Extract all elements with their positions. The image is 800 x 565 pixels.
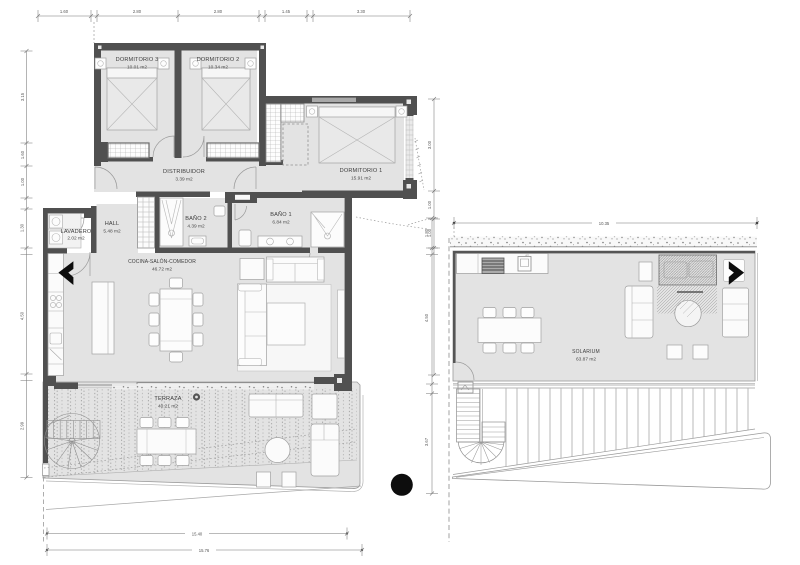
- svg-text:1.30: 1.30: [20, 223, 25, 232]
- svg-text:BAÑO 1: BAÑO 1: [270, 211, 291, 218]
- svg-text:15.91 m2: 15.91 m2: [351, 176, 371, 182]
- svg-text:3.39 m2: 3.39 m2: [175, 177, 193, 183]
- svg-text:10.35: 10.35: [599, 221, 610, 226]
- svg-text:1.00: 1.00: [20, 177, 25, 186]
- svg-text:SOLARIUM: SOLARIUM: [572, 349, 600, 355]
- svg-text:TERRAZA: TERRAZA: [154, 396, 181, 402]
- svg-text:DORMITORIO 1: DORMITORIO 1: [340, 168, 383, 174]
- svg-text:DISTRIBUIDOR: DISTRIBUIDOR: [163, 169, 205, 175]
- svg-text:1.60: 1.60: [60, 9, 69, 14]
- svg-text:2.99: 2.99: [20, 421, 25, 430]
- svg-text:HALL: HALL: [105, 221, 120, 227]
- svg-text:3.00: 3.00: [427, 140, 432, 149]
- svg-text:4.50: 4.50: [424, 313, 429, 322]
- svg-text:1.00: 1.00: [427, 200, 432, 209]
- svg-text:15.76: 15.76: [199, 548, 210, 553]
- svg-text:2.02 m2: 2.02 m2: [67, 236, 85, 242]
- svg-text:5.48 m2: 5.48 m2: [103, 229, 121, 235]
- svg-text:40.21 m2: 40.21 m2: [158, 404, 178, 410]
- svg-text:DORMITORIO 3: DORMITORIO 3: [116, 57, 159, 63]
- svg-text:3.15: 3.15: [20, 92, 25, 101]
- svg-text:DORMITORIO 2: DORMITORIO 2: [197, 57, 240, 63]
- svg-text:10.34 m2: 10.34 m2: [208, 65, 228, 71]
- svg-text:2.80: 2.80: [133, 9, 142, 14]
- svg-text:1.60: 1.60: [20, 150, 25, 159]
- svg-text:3.67: 3.67: [424, 437, 429, 446]
- svg-text:6.84 m2: 6.84 m2: [272, 220, 290, 226]
- svg-text:1.80: 1.80: [424, 228, 429, 237]
- svg-text:2.80: 2.80: [214, 9, 223, 14]
- svg-text:10.01 m2: 10.01 m2: [127, 65, 147, 71]
- svg-text:LAVADERO: LAVADERO: [61, 229, 92, 235]
- svg-text:1.45: 1.45: [282, 9, 291, 14]
- svg-text:4.50: 4.50: [20, 311, 25, 320]
- svg-text:3.30: 3.30: [357, 9, 366, 14]
- svg-text:46.72 m2: 46.72 m2: [152, 267, 172, 273]
- svg-text:BAÑO 2: BAÑO 2: [185, 215, 206, 222]
- svg-text:63.87 m2: 63.87 m2: [576, 357, 596, 363]
- svg-text:4.39 m2: 4.39 m2: [187, 224, 205, 230]
- svg-text:COCINA-SALÓN-COMEDOR: COCINA-SALÓN-COMEDOR: [128, 258, 196, 265]
- svg-text:15.40: 15.40: [192, 532, 203, 537]
